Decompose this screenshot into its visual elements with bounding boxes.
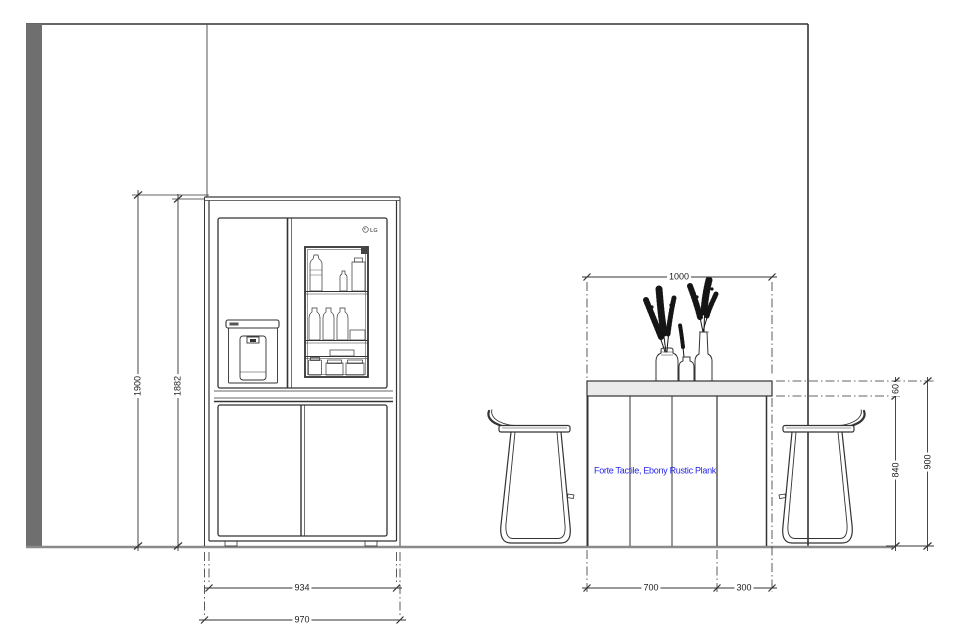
dim-label-stool-clearance: 300 [734,584,753,593]
bar-stool-right [779,410,865,544]
dining-table [587,381,772,546]
dim-label-table-base-width: 700 [641,584,660,593]
bar-stool-left [488,410,574,544]
refrigerator: LG [209,201,397,547]
dim-label-niche-height: 1900 [134,374,143,398]
dimension-lines [132,190,934,624]
material-note: Forte Tactile, Ebony Rustic Plank [594,467,716,476]
dim-label-top-thickness: 60 [892,382,901,396]
water-dispenser-icon [226,320,279,383]
lg-logo-icon: LG [363,227,378,234]
dim-label-counter-height: 900 [924,452,933,471]
elevation-canvas: LG [0,0,956,640]
left-wall-section [26,24,42,547]
dim-label-niche-width: 970 [292,616,311,625]
fridge-foot-left [225,541,237,546]
dim-label-fridge-height: 1882 [174,374,183,398]
fridge-foot-right [365,541,377,546]
dim-label-fridge-width: 934 [292,584,311,593]
instaview-window-icon [305,247,368,377]
fridge-niche [205,197,401,546]
room-outline [26,24,893,547]
drawing-linework: LG [0,0,956,640]
lg-logo-text: LG [370,228,378,234]
dim-label-table-top-width: 1000 [667,273,691,282]
dim-label-counter-underside: 840 [892,460,901,479]
tabletop [587,381,772,396]
plant-icon [646,280,716,357]
